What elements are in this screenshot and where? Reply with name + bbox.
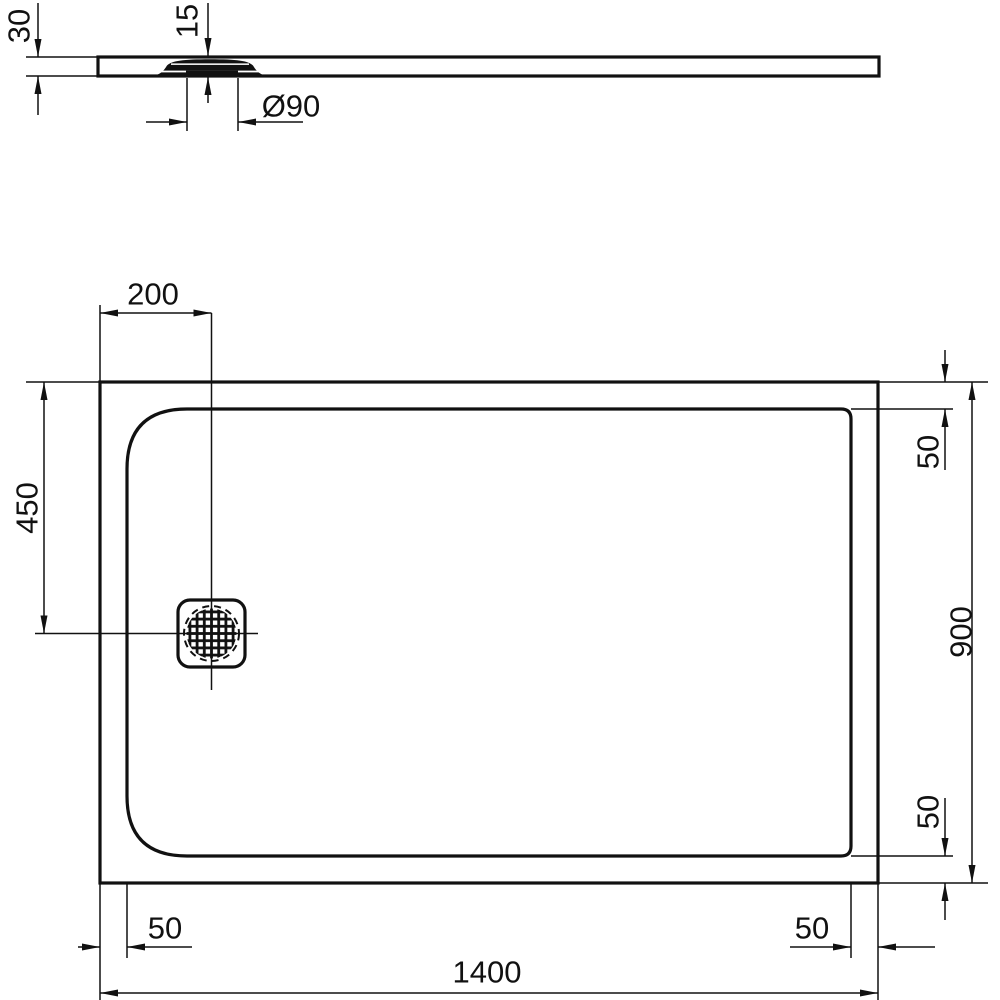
- section-view: 30 15 Ø90: [2, 3, 880, 131]
- dim-50-bottom-left-label: 50: [148, 911, 182, 946]
- dim-tray-length: 1400: [100, 955, 878, 997]
- dim-waste-diameter: Ø90: [146, 78, 320, 131]
- dim-900-label: 900: [944, 606, 979, 658]
- dim-450-label: 450: [10, 482, 45, 534]
- technical-drawing-page: 30 15 Ø90: [0, 0, 1000, 1000]
- dim-30-label: 30: [2, 9, 37, 43]
- dim-drain-offset-left: 200: [100, 277, 212, 383]
- dim-rim-bottom-right-vertical: 50: [911, 795, 949, 920]
- dim-rim-bottom-left: 50: [78, 911, 192, 951]
- waste-flange: [186, 71, 238, 77]
- dim-tray-width: 900: [944, 382, 979, 883]
- dim-waste-height: 15: [170, 3, 212, 103]
- dim-diameter-label: Ø90: [262, 89, 321, 124]
- dim-200-label: 200: [127, 277, 179, 312]
- dim-50-bottom-right-v-label: 50: [911, 795, 946, 829]
- dim-rim-top-right: 50: [911, 350, 949, 470]
- dim-rim-bottom-right: 50: [790, 911, 935, 951]
- plan-view: 200 450 50 900: [10, 277, 989, 1000]
- shower-tray-dimension-drawing: 30 15 Ø90: [0, 0, 1000, 1000]
- dim-15-label: 15: [170, 4, 205, 38]
- dim-1400-label: 1400: [453, 955, 522, 990]
- dim-50-top-right-label: 50: [911, 435, 946, 469]
- dim-50-bottom-right-label: 50: [795, 911, 829, 946]
- section-waste-cover: [149, 59, 271, 77]
- dim-drain-offset-top: 450: [10, 382, 101, 634]
- waste-dome-highlight: [171, 63, 249, 65]
- dim-tray-thickness: 30: [2, 3, 99, 115]
